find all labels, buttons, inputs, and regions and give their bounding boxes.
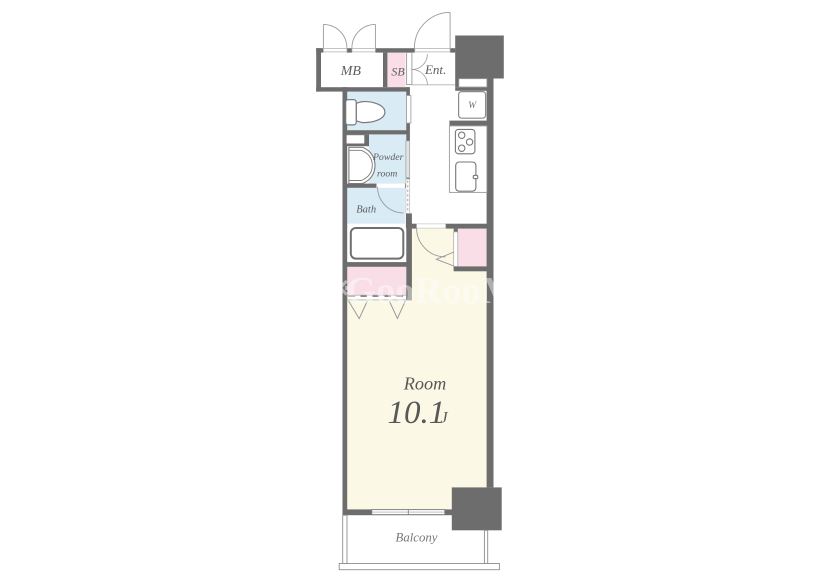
svg-text:Powder: Powder [372, 152, 404, 163]
svg-text:10.1: 10.1 [388, 395, 446, 431]
svg-text:Ent.: Ent. [424, 62, 446, 77]
svg-text:Balcony: Balcony [396, 531, 438, 545]
svg-text:GooRooM: GooRooM [346, 270, 517, 312]
svg-text:Room: Room [403, 374, 446, 394]
svg-text:room: room [377, 169, 397, 180]
svg-text:W: W [468, 101, 477, 111]
svg-text:SB: SB [391, 65, 405, 79]
svg-text:Bath: Bath [356, 205, 376, 216]
svg-text:MB: MB [340, 64, 362, 79]
svg-text:J: J [441, 410, 449, 427]
